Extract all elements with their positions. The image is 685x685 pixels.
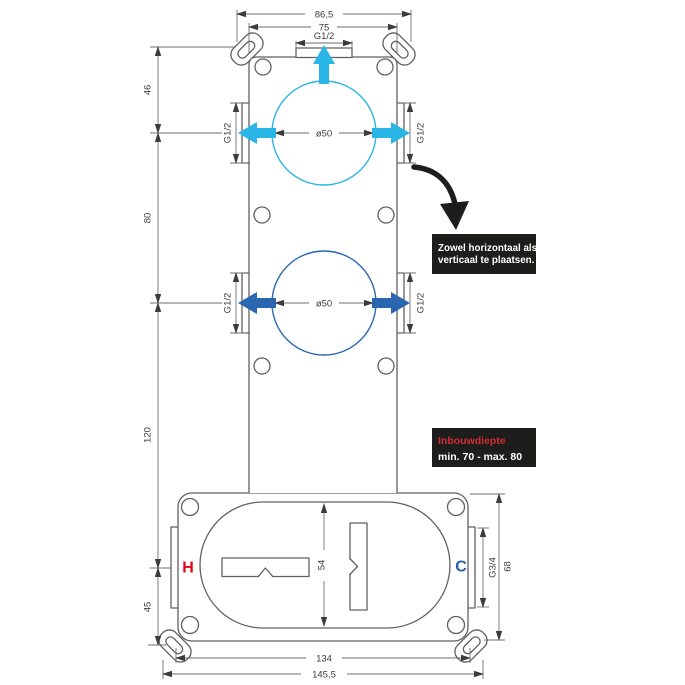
dim-top-thread: G1/2 <box>314 31 335 42</box>
rotation-pointer-arrow <box>414 167 469 230</box>
placement-note-line1: Zowel horizontaal als <box>438 243 538 254</box>
depth-note-title: Inbouwdiepte <box>438 435 506 447</box>
dim-bottom-inner: 134 <box>316 654 332 665</box>
placement-note-line2: verticaal te plaatsen. <box>438 255 535 266</box>
bottom-dimensions: 134 145,5 <box>163 648 483 681</box>
cold-indicator: C <box>455 559 467 576</box>
depth-note: Inbouwdiepte min. 70 - max. 80 <box>432 428 536 467</box>
svg-text:G1/2: G1/2 <box>223 123 234 144</box>
technical-drawing: ø50 ø50 54 H C 86,5 75 G1/2 <box>0 0 685 685</box>
dim-g34: G3/4 <box>477 528 499 607</box>
installation-diagram: ø50 ø50 54 H C 86,5 75 G1/2 <box>0 0 685 685</box>
dim-left-46: 46 <box>143 85 154 96</box>
dim-bottom-outer: 145,5 <box>312 670 336 681</box>
svg-text:ø50: ø50 <box>316 299 332 310</box>
svg-text:G3/4: G3/4 <box>488 557 499 578</box>
dim-left-80: 80 <box>143 213 154 224</box>
placement-note: Zowel horizontaal als verticaal te plaat… <box>432 234 538 274</box>
svg-text:54: 54 <box>317 560 328 571</box>
depth-note-range: min. 70 - max. 80 <box>438 451 522 463</box>
svg-text:G1/2: G1/2 <box>223 293 234 314</box>
svg-text:ø50: ø50 <box>316 129 332 140</box>
hot-indicator: H <box>182 560 194 577</box>
svg-text:68: 68 <box>503 561 514 572</box>
dim-top-outer: 86,5 <box>315 10 334 21</box>
svg-text:G1/2: G1/2 <box>416 293 427 314</box>
svg-text:G1/2: G1/2 <box>416 123 427 144</box>
dim-left-120: 120 <box>143 427 154 443</box>
dim-left-45: 45 <box>143 602 154 613</box>
